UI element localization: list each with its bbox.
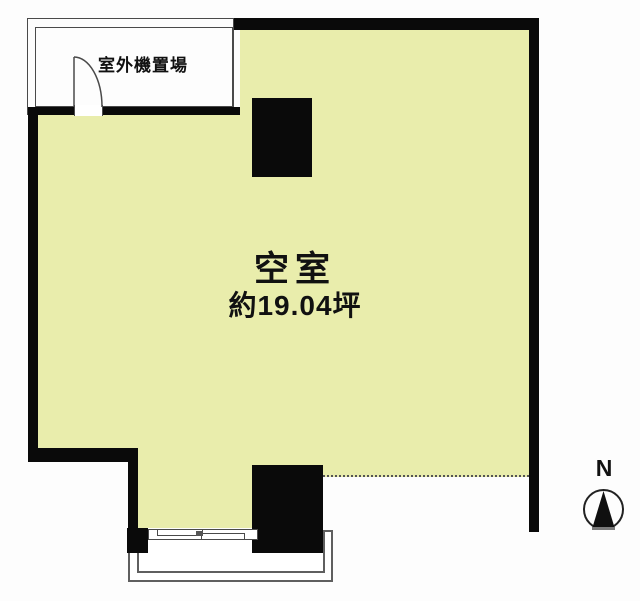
entrance-sliding-door-meeting-mark — [196, 531, 203, 536]
outdoor-unit-label: 室外機置場 — [98, 51, 218, 76]
room-area-label: 約19.04坪 — [150, 290, 440, 322]
compass-needle-base — [592, 527, 615, 530]
pillar-bottom — [252, 465, 323, 553]
room-label-block: 空室 約19.04坪 — [150, 250, 440, 322]
wall-left — [28, 107, 38, 462]
room-status-label: 空室 — [150, 250, 440, 290]
pillar-top — [252, 98, 312, 177]
open-boundary-dotted-line — [323, 475, 529, 477]
wall-right — [529, 18, 539, 532]
entrance-corner-block — [127, 528, 148, 553]
wall-step-horizontal — [28, 448, 138, 462]
wall-step-vertical — [128, 448, 138, 528]
floor-plan: 室外機置場 空室 約19.04坪 N — [0, 0, 640, 601]
wall-top — [234, 18, 539, 30]
entrance-sliding-door-panel-right — [201, 533, 245, 540]
compass-north-label: N — [584, 455, 624, 482]
